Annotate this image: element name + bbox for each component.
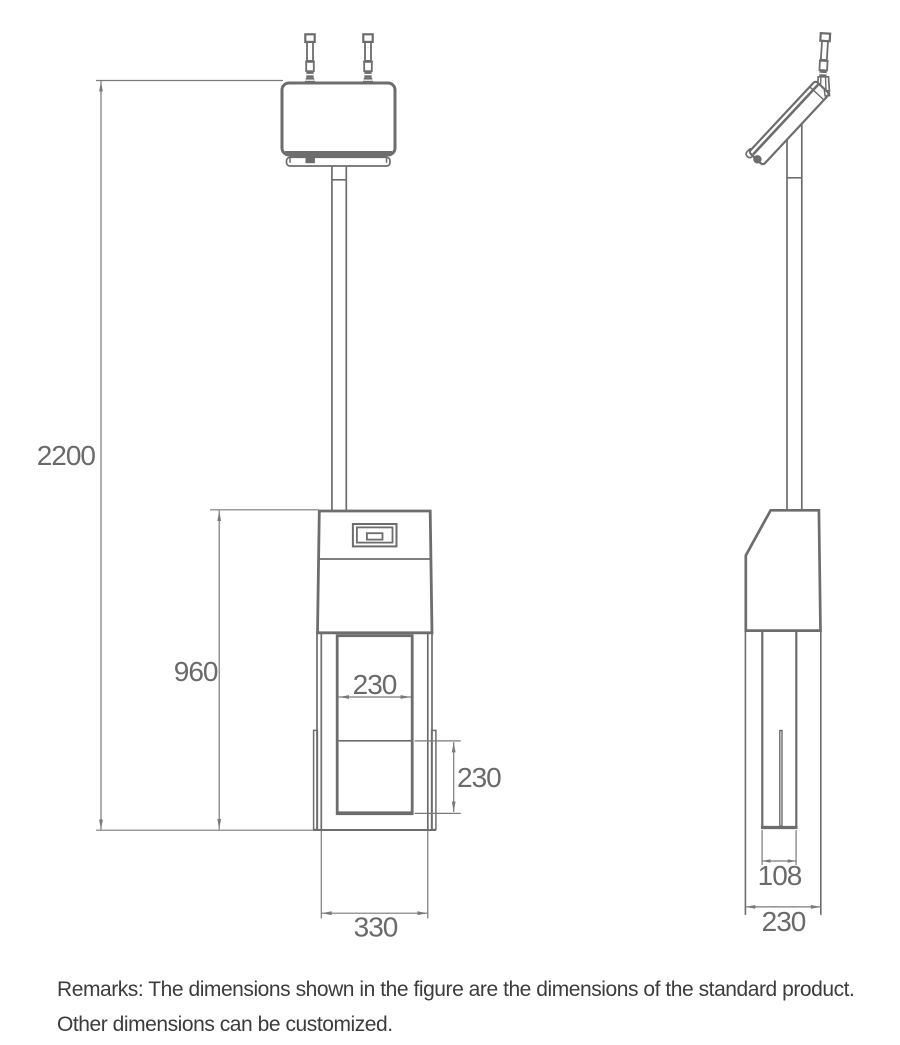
svg-text:108: 108 — [758, 860, 802, 891]
svg-text:230: 230 — [457, 762, 501, 793]
svg-text:2200: 2200 — [37, 440, 96, 471]
svg-text:230: 230 — [762, 906, 806, 937]
svg-text:960: 960 — [174, 656, 218, 687]
svg-text:230: 230 — [353, 669, 397, 700]
svg-text:330: 330 — [354, 912, 398, 943]
